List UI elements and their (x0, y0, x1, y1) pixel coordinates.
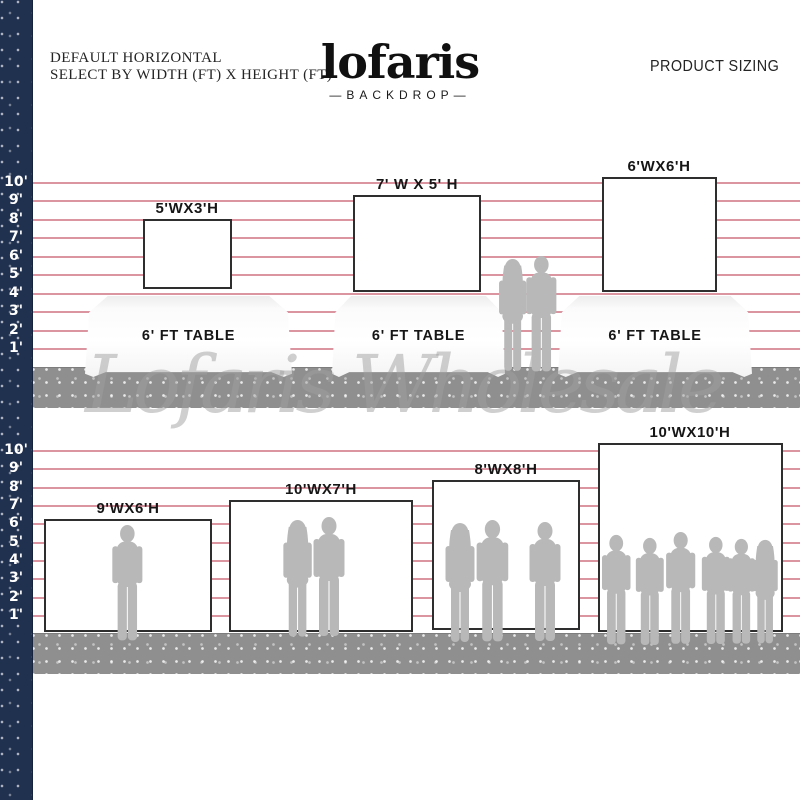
backdrop-box-8x8 (432, 480, 580, 630)
backdrop-box-10x10 (598, 443, 783, 632)
backdrop-box-10x7 (229, 500, 413, 632)
ruler-label: 9' (0, 191, 32, 209)
ruler-label: 4' (0, 551, 32, 569)
backdrop-box-6x6 (602, 177, 717, 292)
table-label: 6' FT TABLE (332, 328, 505, 344)
brand-tagline: —BACKDROP— (290, 88, 510, 102)
measuring-strip (0, 0, 33, 800)
backdrop-size-label: 8'WX8'H (406, 461, 606, 478)
ruler-label: 8' (0, 210, 32, 228)
ruler-label: 7' (0, 496, 32, 514)
backdrop-box-7x5 (353, 195, 481, 292)
ruler-label: 2' (0, 321, 32, 339)
backdrop-size-label: 10'WX7'H (221, 481, 421, 498)
banquet-table: 6' FT TABLE (85, 296, 292, 377)
brand-logo-block: lofaris —BACKDROP— (290, 38, 510, 102)
ruler-label: 6' (0, 247, 32, 265)
backdrop-size-label: 10'WX10'H (590, 424, 790, 441)
ruler-label: 4' (0, 284, 32, 302)
ruler-label: 9' (0, 459, 32, 477)
product-sizing-label: PRODUCT SIZING (650, 58, 785, 76)
ruler-label: 10' (0, 441, 32, 459)
table-label: 6' FT TABLE (558, 328, 752, 344)
ruler-label: 8' (0, 478, 32, 496)
product-sizing-page: Lofaris Wholesale 6' FT TABLE 6' FT TABL… (0, 0, 800, 800)
backdrop-size-label: 6'WX6'H (559, 158, 759, 175)
ruler-label: 3' (0, 302, 32, 320)
brand-logo: lofaris (290, 38, 510, 86)
ruler-label: 10' (0, 173, 32, 191)
banquet-table: 6' FT TABLE (558, 296, 752, 377)
ruler-label: 5' (0, 265, 32, 283)
ft-grid-line (32, 293, 800, 295)
ruler-label: 1' (0, 339, 32, 357)
ruler-label: 3' (0, 569, 32, 587)
floor-strip-top (32, 367, 800, 408)
floor-strip-bottom (32, 633, 800, 674)
backdrop-size-label: 5'WX3'H (87, 200, 287, 217)
backdrop-size-label: 9'WX6'H (28, 500, 228, 517)
backdrop-box-5x3 (143, 219, 232, 289)
table-label: 6' FT TABLE (85, 328, 292, 344)
ruler-label: 1' (0, 606, 32, 624)
ruler-label: 7' (0, 228, 32, 246)
backdrop-box-9x6 (44, 519, 212, 632)
ruler-label: 6' (0, 514, 32, 532)
banquet-table: 6' FT TABLE (332, 296, 505, 377)
ruler-label: 5' (0, 533, 32, 551)
ruler-label: 2' (0, 588, 32, 606)
backdrop-size-label: 7' W X 5' H (317, 176, 517, 193)
